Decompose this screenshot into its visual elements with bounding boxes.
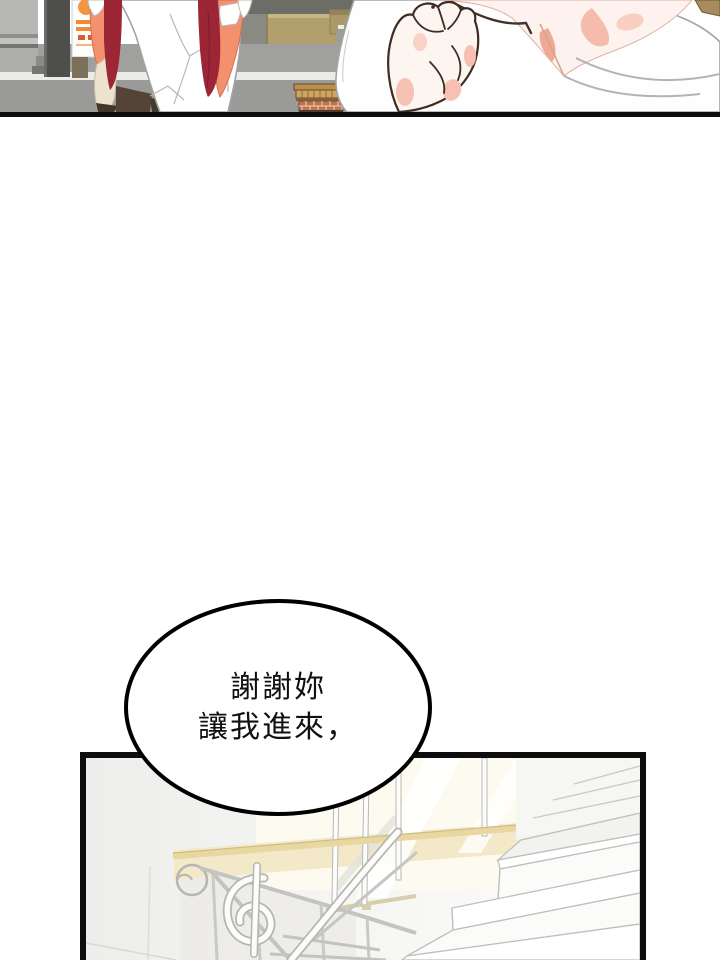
mole-dot bbox=[431, 5, 435, 9]
station-steps bbox=[0, 0, 44, 80]
left-figure bbox=[88, 0, 252, 112]
comic-page: 謝謝妳 讓我進來， bbox=[0, 0, 720, 960]
street-scene-art bbox=[0, 0, 720, 112]
speech-bubble-line-2: 讓我進來， bbox=[198, 708, 358, 748]
speech-bubble-line-1: 謝謝妳 bbox=[230, 668, 326, 708]
panel-street-scene bbox=[0, 0, 720, 117]
speech-bubble: 謝謝妳 讓我進來， bbox=[124, 599, 432, 816]
pillar bbox=[44, 0, 70, 77]
closeup-figure bbox=[336, 0, 720, 112]
